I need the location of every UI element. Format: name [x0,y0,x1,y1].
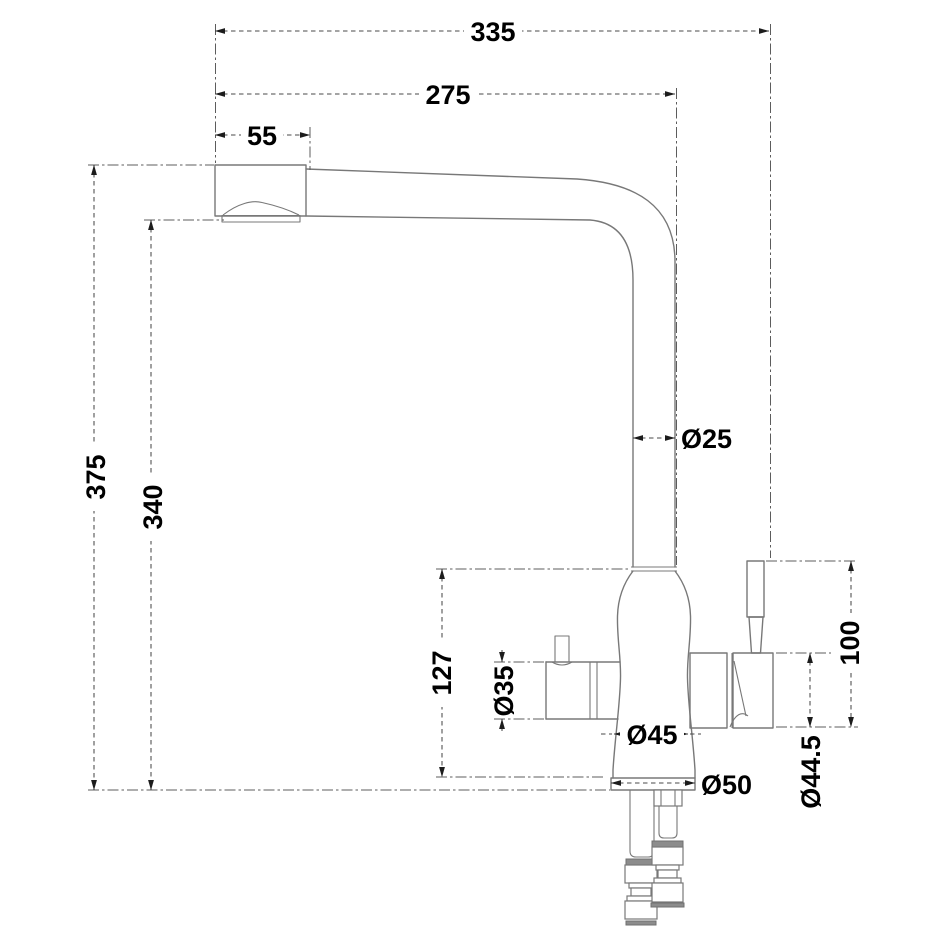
dim-label-d44-5: Ø44.5 [796,735,826,809]
diverter-lever [747,561,764,653]
dim-label-335: 335 [470,17,515,47]
dim-spout-reach: 275 [215,79,675,110]
extension-lines [88,24,858,790]
supply-connectors [625,790,684,925]
dim-body-diameter: Ø45 [601,719,701,750]
dim-label-275: 275 [425,80,470,110]
riser-pipe [631,567,677,571]
diverter-joint-line [734,661,746,716]
dim-overall-height: 375 [80,165,111,790]
dim-label-d45: Ø45 [626,720,677,750]
diverter-assembly [690,653,773,728]
dim-label-127: 127 [427,650,457,695]
dim-label-d25: Ø25 [681,424,732,454]
dim-lever-height: 100 [834,561,865,727]
faucet-technical-drawing: 335 275 55 375 340 Ø25 127 [0,0,945,945]
drawing-canvas: 335 275 55 375 340 Ø25 127 [0,0,945,945]
dim-riser-diameter: Ø25 [633,424,732,454]
spout-tube [306,169,675,567]
dim-label-d35: Ø35 [489,665,519,716]
spray-face-curve [223,202,299,215]
dim-spout-head-length: 55 [215,120,310,151]
dim-label-100: 100 [835,620,865,665]
dim-overall-reach: 335 [215,16,769,47]
dim-outlet-height: 340 [137,220,168,790]
filter-handle-tab [555,636,569,662]
filter-handle [546,636,620,719]
dim-diverter-diameter: Ø44.5 [796,653,826,809]
dim-label-340: 340 [138,484,168,529]
dim-label-55: 55 [247,121,277,151]
spout-head [215,165,306,222]
dim-label-d50: Ø50 [701,770,752,800]
dim-label-375: 375 [81,454,111,499]
dim-body-height: 127 [426,569,457,777]
hex-nut [654,790,682,806]
base-flange [611,778,695,790]
